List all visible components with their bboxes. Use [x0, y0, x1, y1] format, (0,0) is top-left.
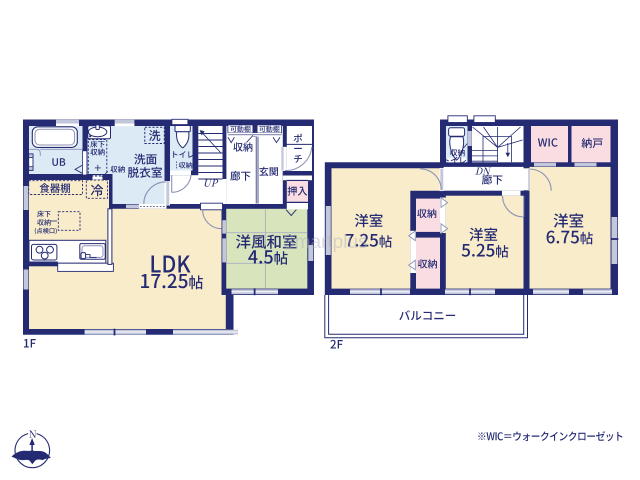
svg-text:Smartplus: Smartplus: [282, 232, 368, 253]
